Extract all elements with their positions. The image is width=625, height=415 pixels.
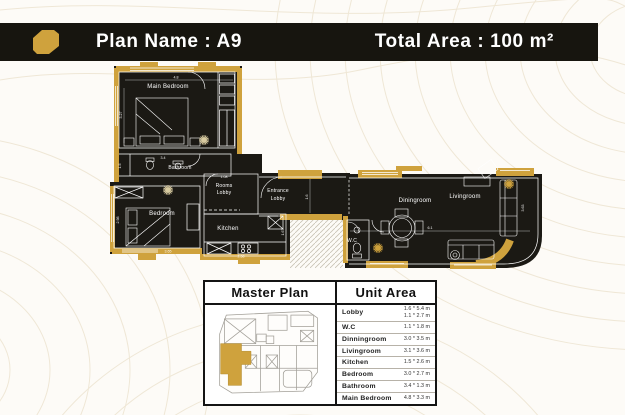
master-plan-header: Master Plan bbox=[205, 282, 335, 305]
dim-kitchen-w: 2.58 bbox=[238, 255, 245, 259]
label-main-bedroom: Main Bedroom bbox=[147, 84, 188, 90]
total-area-label: Total Area : 100 m² bbox=[375, 31, 554, 53]
table-row: Dinningroom 3.0 * 3.5 m bbox=[337, 334, 435, 346]
table-row: Bathroom 3.4 * 1.3 m bbox=[337, 381, 435, 393]
row-room: Livingroom bbox=[342, 348, 381, 355]
label-bathroom: Bathroom bbox=[168, 165, 191, 171]
master-plan-column: Master Plan bbox=[205, 282, 337, 404]
label-livingroom: Livingroom bbox=[449, 194, 480, 200]
table-row: Main Bedroom 4.8 * 3.3 m bbox=[337, 393, 435, 404]
label-kitchen: Kitchen bbox=[217, 226, 238, 232]
table-row: Bedroom 3.0 * 2.7 m bbox=[337, 369, 435, 381]
row-room: Lobby bbox=[342, 309, 363, 316]
label-rooms-lobby-2: Lobby bbox=[217, 190, 232, 196]
table-row: Lobby 1.6 * 5.4 m1.1 * 2.7 m bbox=[337, 305, 435, 322]
label-entrance-lobby-1: Entrance bbox=[267, 188, 289, 194]
master-plan-thumbnail bbox=[205, 305, 335, 404]
dim-entrance-lobby-h: 1.6 bbox=[305, 195, 309, 200]
label-diningroom: Diningroom bbox=[399, 198, 432, 204]
dim-bedroom-w: 3.65 bbox=[165, 250, 172, 254]
info-table: Master Plan bbox=[203, 280, 437, 406]
dim-rooms-lobby-w: 1.08 bbox=[221, 175, 228, 179]
logo-icon bbox=[33, 30, 59, 54]
dim-diningroom-w: 6.1 bbox=[428, 226, 433, 230]
dim-main-bedroom-w: 4.8 bbox=[174, 76, 179, 80]
table-row: Livingroom 3.1 * 3.6 m bbox=[337, 346, 435, 358]
dim-bedroom-h: 2.98 bbox=[116, 217, 120, 224]
label-entrance-lobby-2: Lobby bbox=[271, 196, 286, 202]
table-row: W.C 1.1 * 1.8 m bbox=[337, 322, 435, 334]
header-bar: Plan Name : A9 Total Area : 100 m² bbox=[0, 23, 598, 61]
row-room: Main Bedroom bbox=[342, 395, 392, 402]
unit-area-header: Unit Area bbox=[337, 282, 435, 305]
row-room: Dinningroom bbox=[342, 336, 387, 343]
label-wc: W.C bbox=[347, 238, 357, 244]
row-room: Bathroom bbox=[342, 383, 376, 390]
page: Plan Name : A9 Total Area : 100 m² bbox=[0, 0, 625, 415]
row-room: W.C bbox=[342, 324, 355, 331]
label-bedroom: Bedroom bbox=[149, 211, 175, 217]
plan-name-label: Plan Name : A9 bbox=[96, 31, 242, 53]
dim-main-bedroom-h: 3.27 bbox=[119, 112, 123, 119]
unit-area-column: Unit Area Lobby 1.6 * 5.4 m1.1 * 2.7 m W… bbox=[337, 282, 435, 404]
dim-bathroom-w: 3.4 bbox=[161, 156, 166, 160]
dim-livingroom-h: 3.63 bbox=[521, 205, 525, 212]
row-room: Bedroom bbox=[342, 371, 373, 378]
table-row: Kitchen 1.5 * 2.6 m bbox=[337, 357, 435, 369]
row-room: Kitchen bbox=[342, 359, 368, 366]
void-hatch bbox=[290, 218, 343, 268]
dim-side-room-h: 1.5 bbox=[118, 164, 122, 169]
master-plan-drawing bbox=[213, 307, 327, 403]
dim-kitchen-h: 1.67 bbox=[281, 229, 285, 236]
floor-plan: Main Bedroom Bathroom Rooms Lobby Bedroo… bbox=[100, 58, 550, 278]
label-rooms-lobby-1: Rooms bbox=[216, 183, 233, 189]
